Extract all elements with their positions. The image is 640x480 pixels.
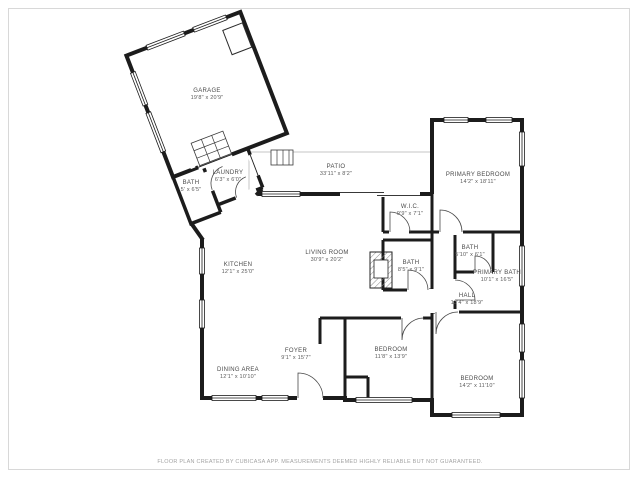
- room-label-wic: W.I.C. 9'9" x 7'1": [397, 204, 423, 218]
- garage-window: [131, 72, 148, 106]
- middle-bedroom-door-arc: [402, 318, 424, 340]
- patio-steps: [271, 150, 293, 165]
- room-label-hall: HALL 13'4" x 18'9": [451, 293, 484, 307]
- disclaimer-text: FLOOR PLAN CREATED BY CUBICASA APP. MEAS…: [157, 459, 482, 465]
- room-label-bath-right: BATH 5'10" x 6'1": [455, 245, 485, 259]
- garage-steps: [191, 131, 231, 166]
- room-label-dining-area: DINING AREA 12'1" x 10'10": [217, 367, 259, 381]
- room-label-kitchen: KITCHEN 12'1" x 25'0": [222, 262, 255, 276]
- room-label-foyer: FOYER 9'1" x 15'7": [281, 348, 311, 362]
- room-label-bath-middle: BATH 8'5" x 9'1": [398, 260, 424, 274]
- wing-connector-walls: [191, 189, 262, 240]
- room-label-bath-laundry: BATH 5' x 6'5": [181, 180, 202, 194]
- garage-window: [146, 112, 166, 153]
- primary-bedroom-door-arc: [440, 210, 462, 232]
- room-label-living-room: LIVING ROOM 30'9" x 20'2": [305, 250, 348, 264]
- room-label-primary-bedroom: PRIMARY BEDROOM 14'2" x 18'11": [446, 172, 510, 186]
- room-label-bedroom-right: BEDROOM 14'2" x 11'10": [459, 376, 495, 390]
- garage-window: [146, 31, 185, 50]
- room-label-garage: GARAGE 19'8" x 20'9": [191, 88, 224, 102]
- room-label-laundry: LAUNDRY 6'3" x 6'0": [213, 170, 244, 184]
- room-label-primary-bath: PRIMARY BATH 10'1" x 16'5": [473, 270, 521, 284]
- room-label-bedroom-middle: BEDROOM 11'8" x 13'9": [374, 347, 407, 361]
- fireplace-hatch: [370, 252, 392, 288]
- floor-plan-canvas: GARAGE 19'8" x 20'9" LAUNDRY 6'3" x 6'0"…: [0, 0, 640, 480]
- garage-window: [193, 15, 227, 32]
- floor-plan-drawing: [0, 0, 640, 480]
- right-bedroom-door-arc: [436, 312, 458, 334]
- room-label-patio: PATIO 33'11" x 8'2": [320, 164, 352, 178]
- front-door-arc: [298, 373, 323, 398]
